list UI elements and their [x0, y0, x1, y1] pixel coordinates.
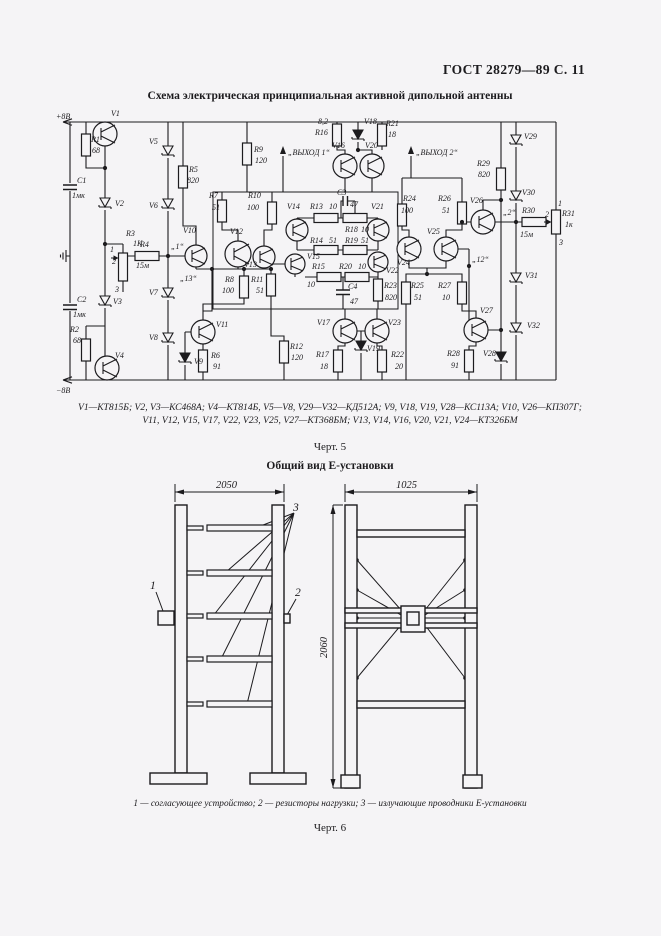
diode-symbol: [163, 333, 173, 342]
component-label: R16: [314, 128, 328, 137]
component-label: V6: [149, 201, 158, 210]
figure6-drawing: 2050 1025 2060 1 2 3: [130, 475, 530, 800]
capacitor-symbol: [63, 185, 77, 190]
diode-symbol: [163, 146, 173, 155]
component-label: 15м: [520, 230, 533, 239]
component-list: V1—КТ815Б; V2, V3—КС468А; V4—КТ814Б, V5—…: [40, 401, 620, 427]
component-label: R8: [224, 275, 234, 284]
component-label: 15м: [136, 261, 149, 270]
component-label: V31: [525, 271, 538, 280]
component-label: R9: [253, 145, 263, 154]
component-label: 10: [361, 225, 369, 234]
component-label: 10: [358, 262, 366, 271]
output-arrow: [280, 146, 286, 154]
diode-symbol: [163, 199, 173, 208]
component-label: R10: [247, 191, 261, 200]
resistor-symbol: [343, 246, 367, 255]
component-label: R27: [437, 281, 452, 290]
diode-symbol: [180, 353, 190, 362]
callout-2: 2: [295, 587, 301, 599]
diode-symbol: [100, 296, 110, 305]
component-label: 51: [442, 206, 450, 215]
component-label: R14: [309, 236, 323, 245]
diode-symbol: [496, 352, 506, 361]
component-label: 18: [388, 130, 396, 139]
dimension-1025: 1025: [396, 480, 417, 491]
figure5-title: Схема электрическая принципиальная актив…: [50, 90, 610, 102]
component-label: „1“: [171, 242, 184, 251]
rung-bar: [207, 701, 272, 707]
component-label: 51: [256, 286, 264, 295]
resistor-symbol: [317, 273, 341, 282]
component-label: R7: [208, 191, 219, 200]
component-label: V23: [388, 318, 401, 327]
component-label: 2: [112, 257, 116, 266]
component-label: 91: [451, 361, 459, 370]
junction-dot: [103, 166, 107, 170]
component-label: V28: [483, 349, 496, 358]
component-label: R18: [344, 225, 358, 234]
diode-symbol: [163, 288, 173, 297]
component-label: „12“: [472, 255, 489, 264]
component-label: R30: [521, 206, 535, 215]
capacitor-symbol: [343, 196, 348, 206]
component-label: 91: [213, 362, 221, 371]
resistor-symbol: [458, 282, 467, 304]
junction-dot: [210, 267, 214, 271]
component-label: 68: [92, 146, 100, 155]
junction-dot: [467, 264, 471, 268]
component-label: R19: [344, 236, 358, 245]
component-label: 100: [222, 286, 234, 295]
figure5-schematic-diagram: +8В−8ВV1R168C11мкV2V5V6R5820R31К123R415м…: [55, 106, 600, 402]
radiating-conductors: [187, 525, 272, 707]
rung-bar: [207, 570, 272, 576]
component-label: C1: [77, 176, 86, 185]
resistor-symbol: [280, 341, 289, 363]
component-label: R28: [446, 349, 460, 358]
rung-bar: [207, 656, 272, 662]
resistor-symbol: [135, 252, 159, 261]
component-label: V21: [371, 202, 384, 211]
side-top-bar: [357, 530, 465, 537]
resistor-symbol: [378, 350, 387, 372]
component-label: V17: [317, 318, 331, 327]
junction-dot: [499, 198, 503, 202]
fig6-side-view: [341, 505, 482, 788]
component-label: R24: [402, 194, 416, 203]
component-label: V16: [332, 141, 345, 150]
component-label: V13: [244, 260, 257, 269]
component-label: R6: [210, 351, 220, 360]
component-label: 3: [114, 285, 119, 294]
component-label: V3: [113, 297, 122, 306]
junction-dot: [460, 220, 464, 224]
component-label: V26: [470, 196, 483, 205]
component-label: „ВЫХОД 2“: [416, 148, 458, 157]
component-label: R4: [139, 240, 149, 249]
diode-symbol: [100, 198, 110, 207]
figure6-legend: 1 — согласующее устройство; 2 — резистор…: [40, 799, 620, 809]
component-label: 18: [320, 362, 328, 371]
component-label: R22: [390, 350, 404, 359]
component-label: 820: [187, 176, 199, 185]
component-label: R21: [385, 119, 399, 128]
component-label: 10: [307, 280, 315, 289]
component-label: V7: [149, 288, 159, 297]
rung-bar: [207, 613, 272, 619]
resistor-symbol: [267, 274, 276, 296]
component-label: R29: [476, 159, 490, 168]
component-list-line2: V11, V12, V15, V17, V22, V23, V25, V27—К…: [40, 414, 620, 427]
component-label: V11: [216, 320, 228, 329]
front-right-foot: [250, 773, 306, 784]
diode-symbol: [511, 191, 521, 200]
junction-dot: [269, 267, 273, 271]
matching-device: [158, 611, 174, 625]
junction-dot: [103, 242, 107, 246]
component-label: 120: [255, 156, 267, 165]
side-center-box-inner: [407, 612, 419, 625]
resistor-symbol: [402, 282, 411, 304]
junction-dot: [499, 328, 503, 332]
page-header: ГОСТ 28279—89 С. 11: [0, 62, 585, 78]
resistor-symbol: [497, 168, 506, 190]
component-label: V12: [230, 227, 243, 236]
figure5-caption: Черт. 5: [50, 441, 610, 453]
component-label: R26: [437, 194, 451, 203]
resistor-symbol: [334, 350, 343, 372]
component-label: 10: [442, 293, 450, 302]
resistor-symbol: [522, 218, 546, 227]
component-label: V4: [115, 351, 124, 360]
component-label: „2“: [503, 208, 516, 217]
component-label: 120: [291, 353, 303, 362]
diode-symbol: [511, 135, 521, 144]
component-label: „ВЫХОД 1“: [288, 148, 330, 157]
component-label: R2: [69, 325, 79, 334]
resistor-symbol: [240, 276, 249, 298]
component-label: R25: [410, 281, 424, 290]
component-label: R31: [561, 209, 575, 218]
diode-symbol: [511, 273, 521, 282]
rung-stub: [187, 702, 203, 706]
diode-symbol: [353, 130, 363, 139]
component-label: R5: [188, 165, 198, 174]
side-lower-bar: [357, 701, 465, 708]
component-label: V15: [307, 252, 320, 261]
potentiometer-symbol: [119, 253, 128, 281]
junction-dot: [425, 272, 429, 276]
component-label: R3: [125, 229, 135, 238]
component-label: V9: [194, 357, 203, 366]
component-label: 10: [329, 202, 337, 211]
component-label: R17: [315, 350, 330, 359]
component-label: 51: [361, 236, 369, 245]
rung-bar: [207, 525, 272, 531]
junction-dot: [514, 220, 518, 224]
component-label: V19: [367, 344, 380, 353]
rung-stub: [187, 614, 203, 618]
component-label: V14: [287, 202, 300, 211]
component-label: V20: [365, 141, 378, 150]
callout-3: 3: [292, 502, 299, 514]
front-left-foot: [150, 773, 207, 784]
figure6-title: Общий вид Е-установки: [50, 460, 610, 472]
side-right-foot: [463, 775, 482, 788]
component-label: 820: [478, 170, 490, 179]
component-label: V2: [115, 199, 124, 208]
side-left-post: [345, 505, 357, 788]
component-label: R11: [250, 275, 263, 284]
component-label: R12: [289, 342, 303, 351]
component-label: 51: [329, 236, 337, 245]
document-page: ГОСТ 28279—89 С. 11 Схема электрическая …: [0, 0, 661, 936]
resistor-symbol: [465, 350, 474, 372]
resistor-symbol: [345, 273, 369, 282]
component-label: V18: [364, 117, 377, 126]
component-label: 51: [414, 293, 422, 302]
component-label: V22: [386, 266, 399, 275]
component-label: V30: [522, 188, 535, 197]
dimension-2050: 2050: [216, 480, 238, 491]
junction-dot: [356, 148, 360, 152]
figure6-caption: Черт. 6: [50, 822, 610, 834]
side-left-foot: [341, 775, 360, 788]
potentiometer-wiper-arrow: [547, 219, 552, 224]
component-label: 47: [350, 200, 359, 209]
component-label: 1: [110, 245, 114, 254]
component-label: C4: [348, 282, 357, 291]
dimension-2060: 2060: [319, 636, 330, 658]
component-label: 1мк: [73, 310, 86, 319]
component-label: V32: [527, 321, 540, 330]
side-right-post: [465, 505, 477, 788]
component-label: V29: [524, 132, 537, 141]
front-right-post: [272, 505, 284, 773]
resistor-symbol: [314, 214, 338, 223]
resistor-symbol: [343, 214, 367, 223]
component-label: R23: [383, 281, 397, 290]
component-label: 820: [385, 293, 397, 302]
component-list-line1: V1—КТ815Б; V2, V3—КС468А; V4—КТ814Б, V5—…: [40, 401, 620, 414]
component-label: V1: [111, 109, 120, 118]
capacitor-symbol: [63, 305, 77, 310]
resistor-symbol: [268, 202, 277, 224]
component-label: V25: [427, 227, 440, 236]
component-label: „13“: [180, 274, 197, 283]
component-label: C3: [337, 188, 346, 197]
component-label: R15: [311, 262, 325, 271]
component-label: V24: [397, 258, 410, 267]
component-label: 100: [401, 206, 413, 215]
component-label: +8В: [56, 112, 70, 121]
component-label: V27: [480, 306, 494, 315]
component-label: C2: [77, 295, 86, 304]
component-label: −8В: [56, 386, 70, 395]
component-label: V8: [149, 333, 158, 342]
load-resistor: [284, 614, 290, 623]
component-label: 1к: [565, 220, 573, 229]
component-label: V10: [183, 226, 196, 235]
component-label: 100: [247, 203, 259, 212]
component-label: R13: [309, 202, 323, 211]
output-arrow: [408, 146, 414, 154]
component-label: 1мк: [72, 191, 85, 200]
resistor-symbol: [82, 339, 91, 361]
component-label: R1: [90, 135, 100, 144]
resistor-symbol: [243, 143, 252, 165]
rung-stub: [187, 526, 203, 530]
component-label: 68: [73, 336, 81, 345]
component-label: 1: [558, 199, 562, 208]
diode-symbol: [356, 341, 366, 350]
component-label: 3: [558, 238, 563, 247]
resistor-symbol: [82, 134, 91, 156]
rung-stub: [187, 571, 203, 575]
front-left-post: [175, 505, 187, 773]
component-label: 2: [545, 210, 549, 219]
component-label: V5: [149, 137, 158, 146]
resistor-symbol: [374, 279, 383, 301]
component-label: 20: [395, 362, 403, 371]
rung-stub: [187, 657, 203, 661]
component-label: 8,2: [318, 117, 328, 126]
junction-dot: [166, 254, 170, 258]
callout-1: 1: [150, 580, 156, 592]
component-label: R20: [338, 262, 352, 271]
potentiometer-symbol: [552, 210, 561, 234]
component-label: 47: [350, 297, 359, 306]
component-label: 51: [212, 203, 220, 212]
diode-symbol: [511, 323, 521, 332]
